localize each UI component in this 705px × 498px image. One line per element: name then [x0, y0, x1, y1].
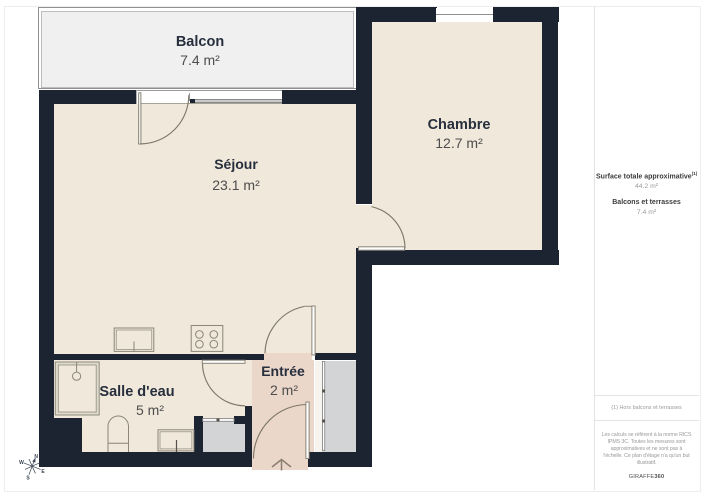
svg-text:N: N [34, 454, 38, 460]
svg-text:S: S [26, 476, 30, 482]
svg-text:E: E [41, 469, 45, 475]
svg-text:W: W [19, 460, 24, 466]
